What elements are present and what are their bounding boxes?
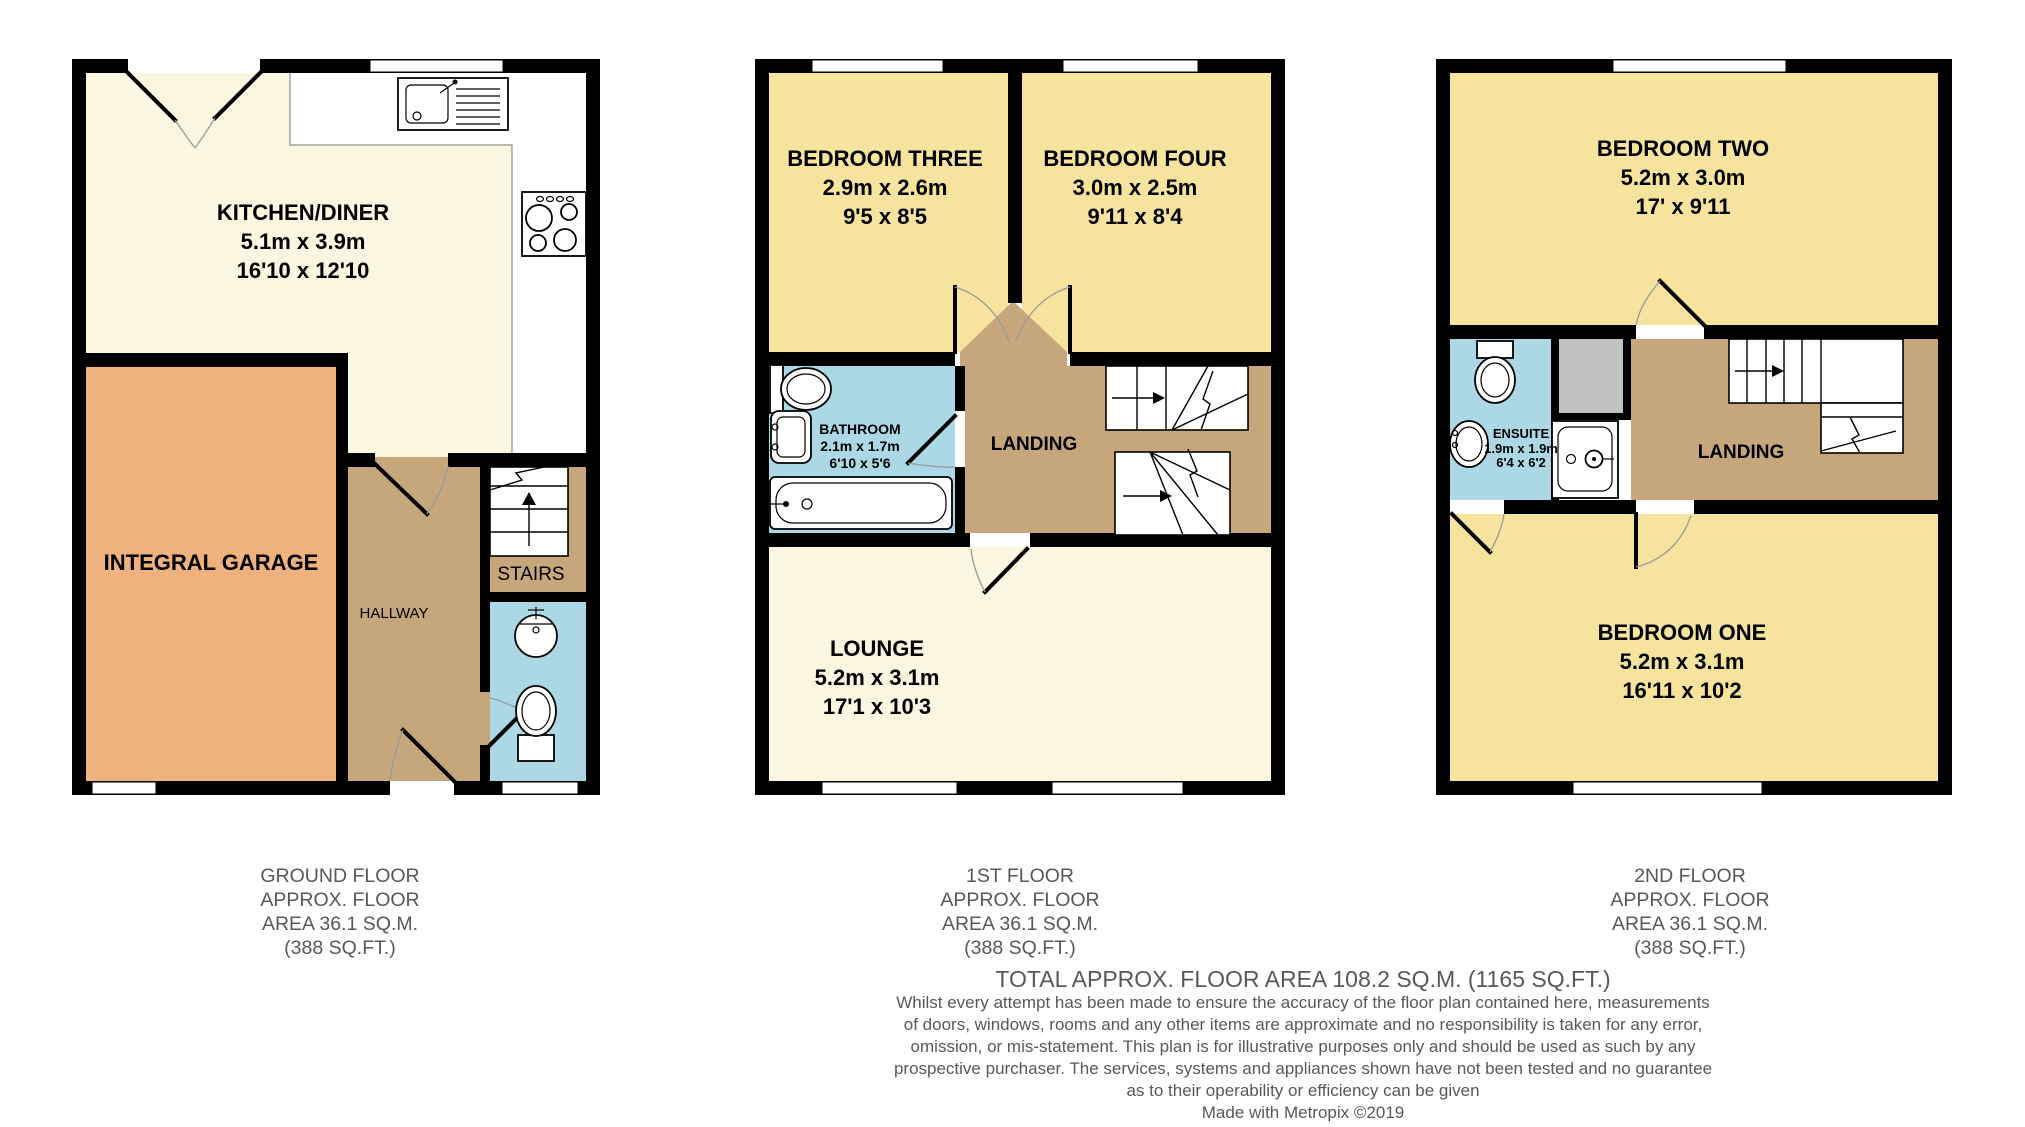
room-imperial: 6'10 x 5'6 — [819, 455, 900, 472]
room-name: BEDROOM TWO — [1597, 134, 1769, 163]
room-imperial: 6'4 x 6'2 — [1484, 456, 1558, 471]
disclaimer-line: of doors, windows, rooms and any other i… — [894, 1014, 1712, 1036]
lounge-window-left — [822, 782, 957, 794]
wc-window — [502, 782, 578, 794]
cupboard — [1559, 339, 1623, 413]
shower-icon — [1552, 421, 1618, 498]
front-door-opening — [390, 781, 454, 795]
room-metric: 5.2m x 3.1m — [815, 663, 940, 692]
room-name: LANDING — [1698, 442, 1785, 464]
total-floor-area: TOTAL APPROX. FLOOR AREA 108.2 SQ.M. (11… — [995, 966, 1610, 992]
ground-floor-plan — [72, 59, 600, 795]
label-bedroom-four: BEDROOM FOUR 3.0m x 2.5m 9'11 x 8'4 — [1043, 144, 1226, 231]
room-name: BEDROOM ONE — [1598, 618, 1767, 647]
disclaimer-line: as to their operability or efficiency ca… — [894, 1080, 1712, 1102]
room-imperial: 9'5 x 8'5 — [787, 202, 983, 231]
label-lounge: LOUNGE 5.2m x 3.1m 17'1 x 10'3 — [815, 634, 940, 721]
label-stairs: STAIRS — [497, 564, 564, 585]
room-name: HALLWAY — [360, 605, 429, 622]
caption-line: AREA 36.1 SQ.M. — [940, 912, 1099, 936]
floorplan-canvas: KITCHEN/DINER 5.1m x 3.9m 16'10 x 12'10 … — [0, 0, 2025, 1127]
room-metric: 5.2m x 3.1m — [1598, 647, 1767, 676]
room-metric: 5.2m x 3.0m — [1597, 163, 1769, 192]
label-hallway: HALLWAY — [360, 605, 429, 622]
lounge-window-right — [1052, 782, 1183, 794]
hob-icon — [522, 192, 586, 256]
room-metric: 2.9m x 2.6m — [787, 173, 983, 202]
disclaimer-line: omission, or mis-statement. This plan is… — [894, 1036, 1712, 1058]
label-bedroom-three: BEDROOM THREE 2.9m x 2.6m 9'5 x 8'5 — [787, 144, 983, 231]
room-name: STAIRS — [497, 564, 564, 585]
stairs-upper-flight-icon — [1106, 366, 1248, 430]
room-name: LOUNGE — [815, 634, 940, 663]
caption-line: AREA 36.1 SQ.M. — [260, 912, 419, 936]
label-integral-garage: INTEGRAL GARAGE — [104, 548, 319, 577]
caption-line: APPROX. FLOOR — [940, 888, 1099, 912]
room-imperial: 9'11 x 8'4 — [1043, 202, 1226, 231]
metropix-credit: Made with Metropix ©2019 — [894, 1102, 1712, 1124]
label-bedroom-one: BEDROOM ONE 5.2m x 3.1m 16'11 x 10'2 — [1598, 618, 1767, 705]
caption-line: (388 SQ.FT.) — [940, 936, 1099, 960]
room-metric: 5.1m x 3.9m — [217, 227, 389, 256]
garage-door — [92, 782, 156, 794]
room-name: KITCHEN/DINER — [217, 198, 389, 227]
toilet-icon — [516, 686, 556, 761]
label-landing-1f: LANDING — [991, 434, 1078, 456]
label-bedroom-two: BEDROOM TWO 5.2m x 3.0m 17' x 9'11 — [1597, 134, 1769, 221]
entrance-door-opening — [128, 59, 260, 73]
bedroom-four-window — [1063, 60, 1198, 72]
stairs-lower-flight-icon — [1115, 449, 1230, 535]
sink-icon — [398, 78, 508, 130]
caption-line: AREA 36.1 SQ.M. — [1610, 912, 1769, 936]
sink-icon — [771, 411, 811, 463]
ground-floor-caption: GROUND FLOOR APPROX. FLOOR AREA 36.1 SQ.… — [260, 864, 419, 960]
toilet-icon — [1475, 341, 1515, 403]
room-metric: 2.1m x 1.7m — [819, 438, 900, 455]
room-metric: 3.0m x 2.5m — [1043, 173, 1226, 202]
caption-line: GROUND FLOOR — [260, 864, 419, 888]
room-imperial: 17'1 x 10'3 — [815, 692, 940, 721]
room-name: INTEGRAL GARAGE — [104, 548, 319, 577]
toilet-icon — [770, 365, 831, 413]
room-imperial: 16'10 x 12'10 — [217, 256, 389, 285]
room-imperial: 16'11 x 10'2 — [1598, 676, 1767, 705]
bedroom-three-window — [812, 60, 943, 72]
room-metric: 1.9m x 1.9m — [1484, 442, 1558, 457]
kitchen-counter-right — [512, 73, 586, 457]
first-floor-caption: 1ST FLOOR APPROX. FLOOR AREA 36.1 SQ.M. … — [940, 864, 1099, 960]
room-name: BEDROOM THREE — [787, 144, 983, 173]
disclaimer-line: prospective purchaser. The services, sys… — [894, 1058, 1712, 1080]
label-kitchen-diner: KITCHEN/DINER 5.1m x 3.9m 16'10 x 12'10 — [217, 198, 389, 285]
second-floor-caption: 2ND FLOOR APPROX. FLOOR AREA 36.1 SQ.M. … — [1610, 864, 1769, 960]
room-name: ENSUITE — [1484, 427, 1558, 442]
room-name: LANDING — [991, 434, 1078, 456]
caption-line: 2ND FLOOR — [1610, 864, 1769, 888]
room-name: BEDROOM FOUR — [1043, 144, 1226, 173]
caption-line: APPROX. FLOOR — [260, 888, 419, 912]
bath-icon — [770, 477, 952, 529]
room-name: BATHROOM — [819, 421, 900, 438]
disclaimer: Whilst every attempt has been made to en… — [894, 992, 1712, 1124]
disclaimer-line: Whilst every attempt has been made to en… — [894, 992, 1712, 1014]
kitchen-window — [370, 60, 503, 72]
label-landing-2f: LANDING — [1698, 442, 1785, 464]
basin-icon — [1450, 421, 1488, 467]
caption-line: APPROX. FLOOR — [1610, 888, 1769, 912]
label-bathroom: BATHROOM 2.1m x 1.7m 6'10 x 5'6 — [819, 421, 900, 472]
label-ensuite: ENSUITE 1.9m x 1.9m 6'4 x 6'2 — [1484, 427, 1558, 471]
room-imperial: 17' x 9'11 — [1597, 192, 1769, 221]
bedroom-one-window — [1573, 782, 1762, 794]
bedroom-two-window — [1613, 60, 1786, 72]
caption-line: 1ST FLOOR — [940, 864, 1099, 888]
stairs-up-icon — [490, 466, 568, 556]
caption-line: (388 SQ.FT.) — [1610, 936, 1769, 960]
caption-line: (388 SQ.FT.) — [260, 936, 419, 960]
